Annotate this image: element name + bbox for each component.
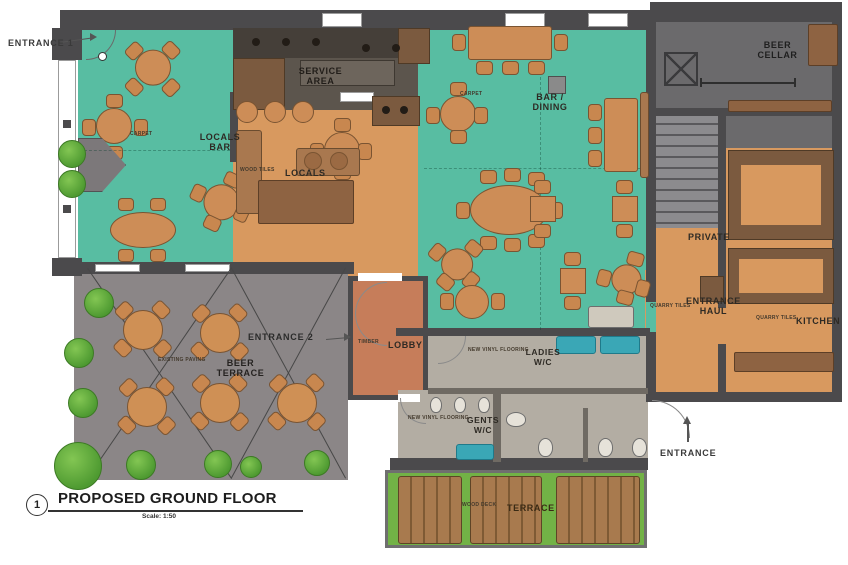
chair (474, 107, 488, 124)
toilet (598, 438, 613, 457)
window-top-1 (322, 13, 362, 27)
cellar-counter (728, 100, 832, 112)
room-finish: TIMBER (358, 340, 379, 346)
entrance2-arrowhead (344, 333, 351, 341)
tap-icon (312, 38, 320, 46)
chair (564, 252, 581, 266)
window-top-2 (505, 13, 545, 27)
room-name: LOCALS BAR (190, 132, 250, 153)
square-table (560, 268, 586, 294)
tap-icon (282, 38, 290, 46)
window-left-mullion-2 (63, 205, 71, 213)
stove-unit (372, 96, 420, 126)
wall-bar-east (646, 20, 656, 400)
tap-icon (252, 38, 260, 46)
chair (554, 34, 568, 51)
wall-cellar-top (650, 2, 840, 22)
stool (330, 152, 348, 170)
room-name: LOCALS (285, 168, 326, 178)
shrub (204, 450, 232, 478)
chair (450, 130, 467, 144)
wall-kitchen-left (718, 112, 726, 396)
square-table (612, 196, 638, 222)
round-table (455, 285, 489, 319)
window-mid-1 (95, 264, 140, 272)
chair (564, 296, 581, 310)
room-finish: CARPET (460, 92, 482, 98)
chair (588, 104, 602, 121)
room-name: BAR / DINING (520, 92, 580, 113)
window-top-3 (588, 13, 628, 27)
window-mid-2 (185, 264, 230, 272)
shrub (58, 140, 86, 168)
drawing-scale: Scale: 1:50 (142, 513, 176, 520)
room-finish: QUARRY TILES (756, 316, 797, 322)
room-finish: CARPET (130, 132, 152, 138)
wall-bar-wc (396, 328, 650, 336)
urinal (430, 397, 442, 413)
entrance-2-label: ENTRANCE 2 (248, 332, 314, 342)
chair (426, 107, 440, 124)
dimension-line (700, 82, 795, 84)
door-knob-symbol (98, 52, 107, 61)
oval-table (110, 212, 176, 248)
chair (534, 224, 551, 238)
toilet (632, 438, 647, 457)
room-name: ENTRANCE HAUL (686, 296, 741, 317)
dimension-tick (700, 78, 702, 87)
tap-icon (362, 44, 370, 52)
drawing-title: PROPOSED GROUND FLOOR (58, 490, 277, 507)
room-name: PRIVATE (688, 232, 730, 242)
table-four-seats (424, 80, 490, 146)
long-table (468, 26, 552, 60)
chair (334, 118, 351, 132)
service-corner-unit (398, 28, 430, 64)
chair (150, 249, 166, 262)
cellar-shelf (808, 24, 838, 66)
floor-plan: LOCALS BAR CARPET SERVICE AREA LOCALS WO… (0, 0, 848, 565)
chair (452, 34, 466, 51)
chair (476, 61, 493, 75)
chair (504, 168, 521, 182)
chair (504, 238, 521, 252)
partition-ladies-gents (428, 388, 648, 394)
chair (150, 198, 166, 211)
chair (616, 224, 633, 238)
toilet (538, 438, 553, 457)
staircase (654, 114, 720, 232)
service-hatch (340, 92, 374, 102)
entrance-1-label: ENTRANCE 1 (8, 38, 74, 48)
shrub (240, 456, 262, 478)
dimension-tick (794, 78, 796, 87)
chair (588, 127, 602, 144)
shrub (68, 388, 98, 418)
deck-planks (398, 476, 462, 544)
chair (118, 198, 134, 211)
entrance1-arrowhead (90, 33, 97, 41)
chair (491, 293, 505, 310)
ladies-sink-unit (600, 336, 640, 354)
room-name: LOBBY (388, 340, 423, 350)
locals-counter (258, 180, 354, 224)
chair (456, 202, 470, 219)
tap-icon (392, 44, 400, 52)
chair (82, 119, 96, 136)
room-finish: NEW VINYL FLOORING (468, 348, 529, 354)
kitchen-island-2-top (738, 258, 824, 294)
bar-stool (264, 101, 286, 123)
chair (634, 278, 652, 298)
chair (615, 289, 635, 307)
entrance-arrow-line (687, 422, 689, 442)
corridor-upper (724, 112, 836, 150)
entrance-arrowhead (683, 416, 691, 424)
chair (502, 61, 519, 75)
table-top (440, 96, 476, 132)
chair (595, 268, 613, 288)
entrance-label: ENTRANCE (660, 448, 716, 458)
chair (118, 249, 134, 262)
shrub (126, 450, 156, 480)
room-finish: WOOD DECK (462, 503, 496, 509)
shrub (54, 442, 102, 490)
shrub (304, 450, 330, 476)
chair (106, 94, 123, 108)
room-finish: WOOD TILES (240, 168, 275, 174)
deck-planks (556, 476, 640, 544)
chair (588, 150, 602, 167)
room-finish: QUARRY TILES (650, 304, 691, 310)
shrub (84, 288, 114, 318)
hatch-box (664, 52, 698, 86)
room-name: BEER TERRACE (213, 358, 268, 379)
knob-icon (382, 106, 390, 114)
chair (528, 61, 545, 75)
knob-icon (400, 106, 408, 114)
wall-wc-bottom (390, 458, 648, 470)
drawing-number-circle: 1 (26, 494, 48, 516)
urinal (478, 397, 490, 413)
banquette (640, 92, 649, 178)
room-name: BEER CELLAR (750, 40, 805, 61)
chair (358, 143, 372, 160)
bar-stool (236, 101, 258, 123)
toilet (506, 412, 526, 427)
room-name: KITCHEN (796, 316, 840, 326)
door-gap-lobby-top (358, 273, 402, 281)
shrub (58, 170, 86, 198)
partition-stall-2 (583, 408, 588, 462)
room-name: SERVICE AREA (293, 66, 348, 87)
urinal (454, 397, 466, 413)
chair (616, 180, 633, 194)
square-table (530, 196, 556, 222)
kitchen-island-1-top (740, 164, 822, 226)
shrub (64, 338, 94, 368)
room-finish: EXISTING PAVING (158, 358, 206, 364)
chair (440, 293, 454, 310)
gents-sink-unit (456, 444, 494, 460)
long-table-vertical (604, 98, 638, 172)
kitchen-counter (734, 352, 834, 372)
wall-kitchen-bottom (646, 392, 842, 402)
chair (480, 170, 497, 184)
title-underline (48, 510, 303, 512)
room-finish: NEW VINYL FLOORING (408, 416, 469, 422)
room-name: TERRACE (507, 503, 555, 513)
chair (534, 180, 551, 194)
window-left-mullion-1 (63, 120, 71, 128)
waitress-station (588, 306, 634, 328)
